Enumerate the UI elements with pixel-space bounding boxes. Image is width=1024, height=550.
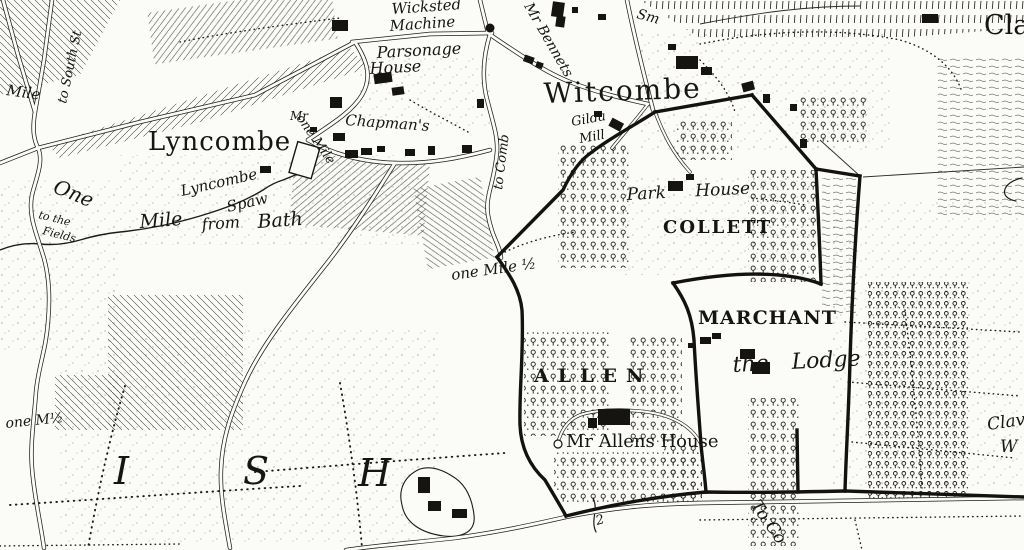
building — [763, 94, 770, 103]
building — [588, 418, 597, 428]
hatch-left-slope — [108, 295, 243, 430]
machine-wheel — [486, 24, 495, 33]
hatch-road-bank — [413, 177, 494, 270]
label-parish-letter-h: H — [357, 451, 392, 495]
building — [676, 56, 698, 69]
building — [790, 104, 797, 111]
building — [428, 146, 435, 155]
plantation — [868, 282, 968, 500]
building — [333, 133, 345, 141]
building — [332, 20, 348, 31]
building — [686, 174, 694, 180]
label-marchant: MARCHANT — [698, 307, 837, 329]
building — [701, 67, 712, 75]
scribble-right-side — [938, 55, 1024, 215]
building — [598, 14, 606, 20]
building — [688, 343, 694, 348]
building — [555, 15, 565, 27]
building — [428, 501, 441, 511]
allens-house-building — [598, 409, 630, 425]
building — [551, 1, 565, 18]
building — [392, 86, 405, 96]
orchard — [664, 444, 702, 498]
historic-estate-map: Mile to South St Wicksted Machine Parson… — [0, 0, 1024, 550]
map-canvas: Mile to South St Wicksted Machine Parson… — [0, 0, 1024, 550]
label-mile: Mile — [138, 208, 183, 233]
building — [405, 149, 415, 156]
label-bath: Bath — [256, 208, 304, 233]
building — [418, 477, 430, 493]
label-parish-letter-i: I — [113, 449, 130, 493]
building — [462, 145, 472, 153]
label-lyncombe: Lyncombe — [148, 127, 291, 157]
building — [668, 44, 676, 50]
building — [800, 139, 807, 148]
label-claverton-cut: Clav — [984, 10, 1024, 41]
building — [330, 97, 342, 108]
label-allens-house: Mr Allens House — [566, 431, 719, 452]
label-allen: ALLEN — [533, 365, 652, 387]
building — [361, 148, 372, 155]
label-clav-wood-2: W — [1000, 437, 1019, 457]
label-from: from — [200, 212, 241, 234]
label-parish-letter-s: S — [243, 449, 269, 493]
orchard — [558, 142, 630, 268]
building — [452, 509, 467, 518]
building — [712, 333, 721, 339]
building — [477, 99, 484, 108]
orchard — [800, 96, 866, 142]
label-collett: COLLETT — [663, 217, 772, 238]
well-feature — [554, 440, 562, 448]
orchard — [630, 334, 682, 444]
label-witcombe: Witcombe — [543, 71, 702, 109]
building — [922, 14, 938, 23]
boundary-lodge-divider — [797, 430, 798, 492]
label-parsonage-2: House — [368, 56, 422, 78]
building — [572, 7, 578, 13]
building — [700, 337, 711, 344]
orchard — [676, 120, 732, 160]
building — [345, 150, 358, 158]
hatch-lower-slope — [55, 375, 120, 430]
building — [377, 146, 385, 152]
building — [260, 166, 271, 173]
